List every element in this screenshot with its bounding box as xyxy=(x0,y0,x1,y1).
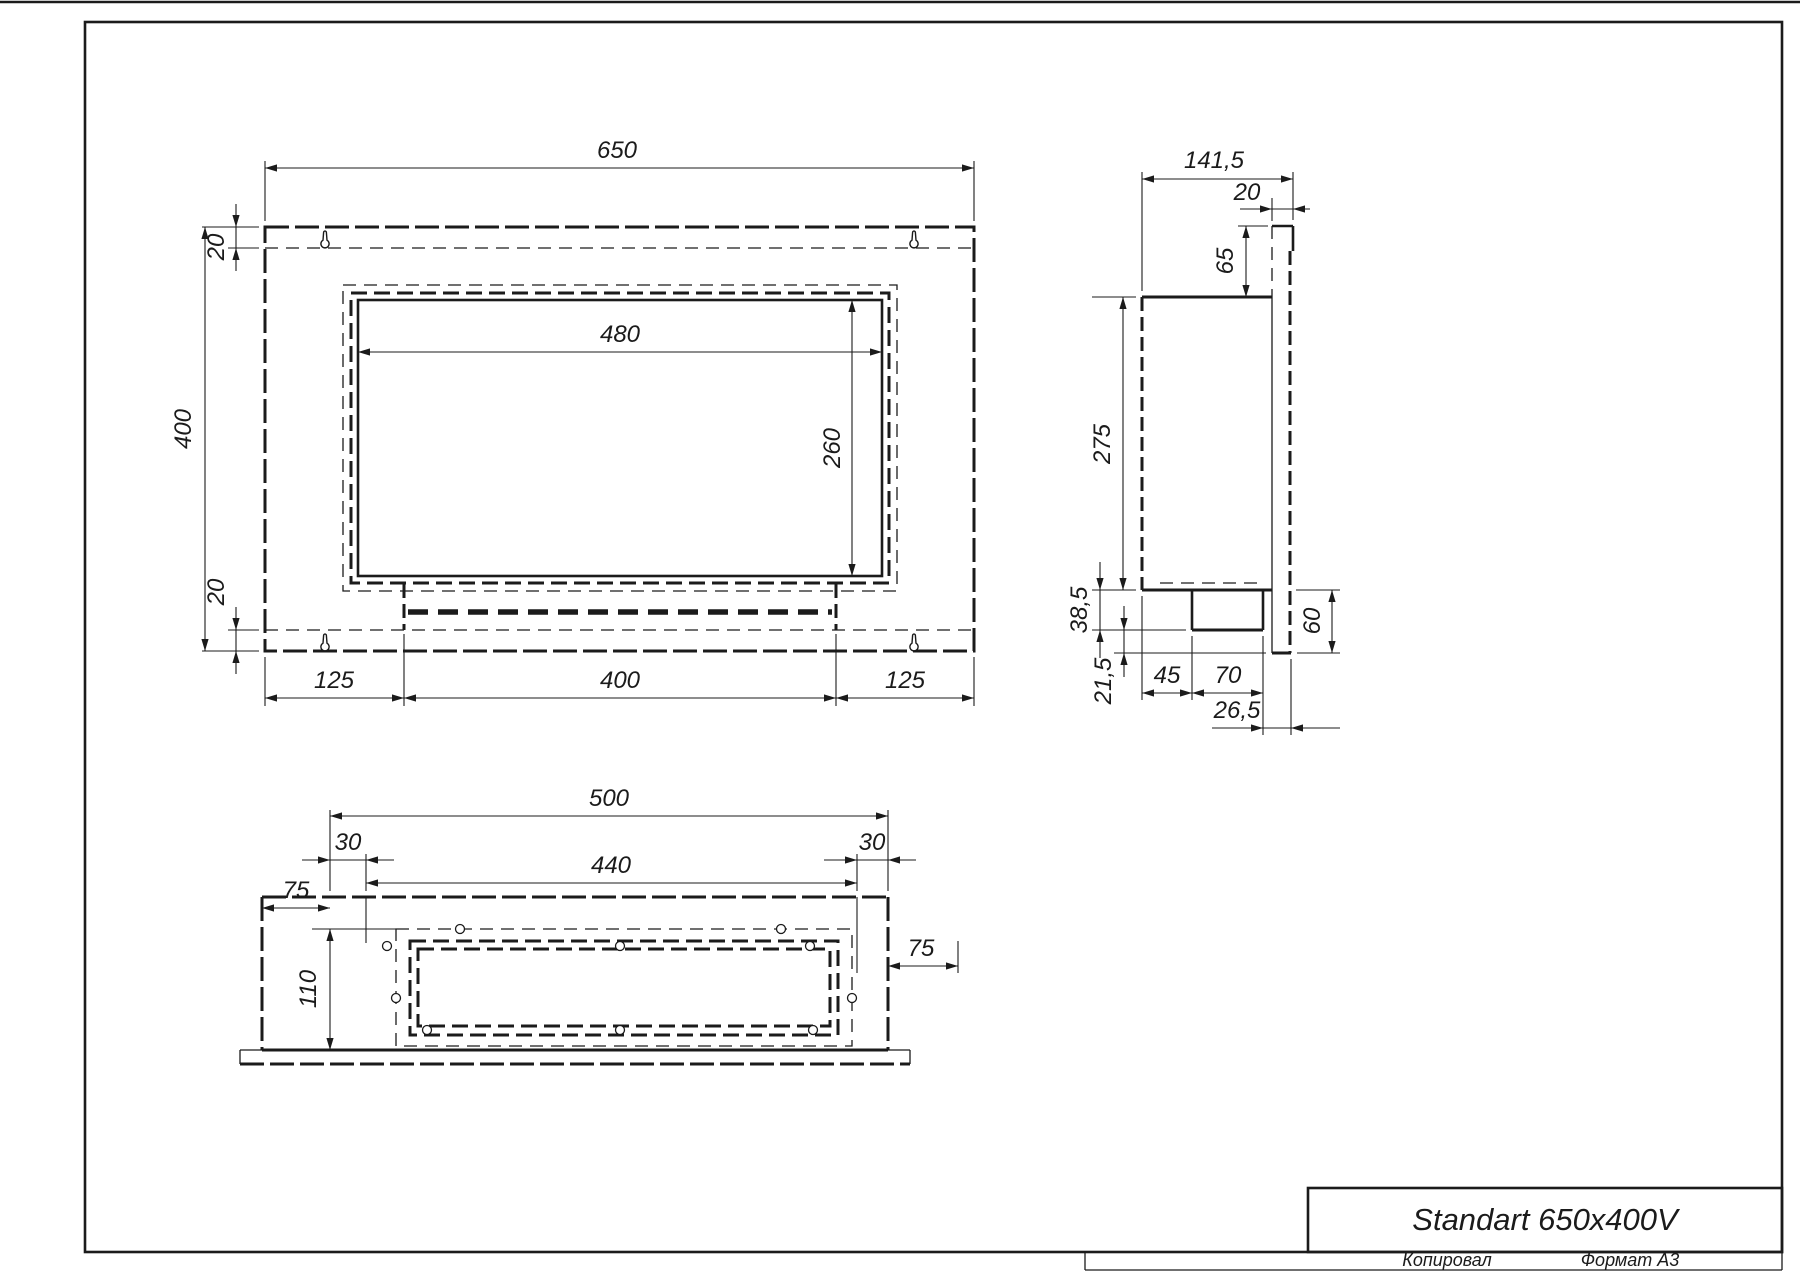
dim-side-flange-height: 65 xyxy=(1212,247,1239,274)
dim-bottom-opening-width: 440 xyxy=(591,852,632,879)
screw-hole-icon xyxy=(392,994,401,1003)
dim-front-total-width: 650 xyxy=(597,137,638,164)
footer-copied-label: Копировал xyxy=(1402,1250,1492,1270)
dim-front-opening-height: 260 xyxy=(819,427,846,469)
sheet-border xyxy=(85,22,1782,1252)
dim-bottom-box-depth: 110 xyxy=(295,969,322,1008)
screw-hole-icon xyxy=(423,1026,432,1035)
dim-front-burner-width: 400 xyxy=(600,667,641,694)
dim-side-tank-height: 38,5 xyxy=(1066,586,1093,633)
bottom-frame-inner xyxy=(418,949,830,1026)
dim-bottom-box-width: 500 xyxy=(589,785,630,812)
technical-drawing: 650 400 20 20 480 260 125 400 125 xyxy=(0,0,1800,1273)
side-body-hidden-edges xyxy=(1142,251,1290,653)
dim-front-opening-width: 480 xyxy=(600,321,641,348)
dim-side-total-depth: 141,5 xyxy=(1184,147,1245,174)
drawing-title: Standart 650x400V xyxy=(1412,1202,1681,1237)
dim-front-total-height: 400 xyxy=(170,408,197,449)
screw-hole-icon xyxy=(383,942,392,951)
dim-front-bottom-offset: 20 xyxy=(203,578,230,606)
side-body-top-bottom xyxy=(1142,297,1272,590)
dim-front-bottom-left: 125 xyxy=(314,667,355,694)
front-view: 650 400 20 20 480 260 125 400 125 xyxy=(170,137,974,706)
dim-front-bottom-right: 125 xyxy=(885,667,926,694)
keyhole-icon xyxy=(321,634,329,651)
dim-bottom-flange-right: 75 xyxy=(908,935,935,962)
side-flange xyxy=(1272,226,1293,251)
bottom-view: 500 30 440 30 75 110 75 xyxy=(240,785,958,1064)
dim-bottom-inset-right: 30 xyxy=(859,829,886,856)
screw-hole-icon xyxy=(616,1026,625,1035)
front-hanger-lines xyxy=(265,248,974,630)
bottom-frame-mid xyxy=(410,941,838,1035)
keyhole-icon xyxy=(910,231,918,248)
keyhole-icon xyxy=(910,634,918,651)
side-tank-walls xyxy=(1192,590,1263,630)
keyhole-icon xyxy=(321,231,329,248)
screw-hole-icon xyxy=(809,1026,818,1035)
dim-bottom-flange-left: 75 xyxy=(283,877,310,904)
side-view: 141,5 20 65 275 38,5 21,5 45 70 26,5 60 xyxy=(1066,147,1340,735)
screw-hole-icon xyxy=(806,942,815,951)
dim-side-panel-thickness: 20 xyxy=(1233,179,1261,206)
dim-side-tank-front-offset: 45 xyxy=(1154,662,1181,689)
dim-side-panel-overhang: 60 xyxy=(1299,607,1326,634)
screw-hole-icon xyxy=(456,925,465,934)
dim-front-top-offset: 20 xyxy=(203,233,230,261)
title-block: Standart 650x400V Копировал Формат А3 xyxy=(1085,1188,1782,1270)
screw-hole-icon xyxy=(777,925,786,934)
dim-side-body-height: 275 xyxy=(1089,423,1116,465)
dim-side-bottom-lip: 21,5 xyxy=(1090,657,1117,705)
front-panel-outline xyxy=(265,227,974,651)
dim-side-tank-rear-offset: 26,5 xyxy=(1213,697,1261,724)
dim-bottom-inset-left: 30 xyxy=(335,829,362,856)
screw-hole-icon xyxy=(848,994,857,1003)
drawing-sheet: 650 400 20 20 480 260 125 400 125 xyxy=(0,0,1800,1273)
screw-hole-icon xyxy=(616,942,625,951)
front-extension-lines xyxy=(202,161,974,706)
bottom-panel-strip-sides xyxy=(240,1050,910,1064)
dim-side-tank-width: 70 xyxy=(1215,662,1242,689)
footer-format-label: Формат А3 xyxy=(1581,1250,1680,1270)
